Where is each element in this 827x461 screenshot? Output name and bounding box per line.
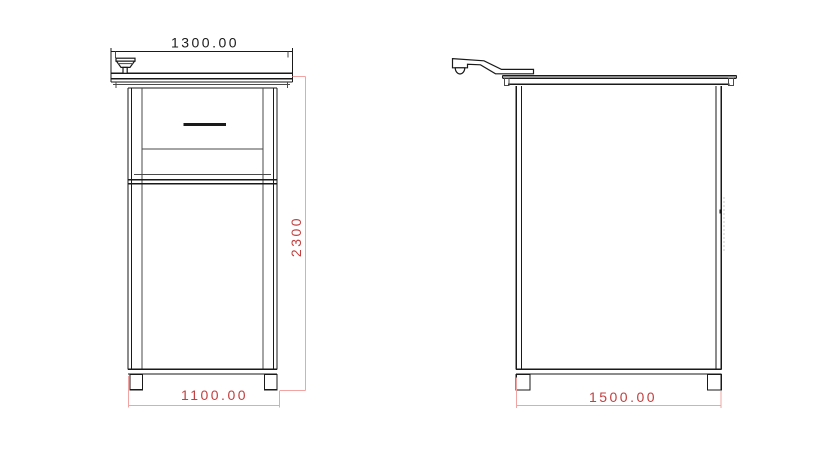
dim-label-front-top-width: 1300.00 [171,35,239,51]
mic-dome [455,68,465,74]
drawer-handle [184,123,227,126]
dim-label-base-width: 1100.00 [181,387,248,403]
front-right-foot [265,375,278,390]
side-body-frame [516,86,724,369]
side-view: 1500.00 [453,59,737,408]
side-bottom-rail [516,369,721,374]
dim-label-base-depth: 1500.00 [589,389,657,405]
side-tabletop [503,76,737,86]
side-right-foot [708,375,722,391]
front-tabletop [111,73,293,88]
drawing-canvas: 1300.00 [0,0,827,461]
dim-label-height: 2300 [288,216,304,257]
drawer [134,123,271,174]
front-mid-rail [128,180,277,184]
gooseneck-microphone-icon [453,59,534,74]
height-dimension: 2300 [280,77,306,391]
front-left-foot [130,375,143,390]
side-left-foot [516,375,530,391]
hardware-tick [720,210,723,214]
front-bottom-rail [128,369,277,374]
base-width-dimension: 1100.00 [128,376,279,408]
front-view: 1300.00 [111,35,305,408]
microphone-dome-icon [116,58,135,73]
base-depth-dimension: 1500.00 [516,378,721,408]
mic-arm [453,59,534,74]
technical-drawing: 1300.00 [0,0,827,461]
front-body-frame [128,88,277,369]
front-top-dimension: 1300.00 [111,35,293,83]
